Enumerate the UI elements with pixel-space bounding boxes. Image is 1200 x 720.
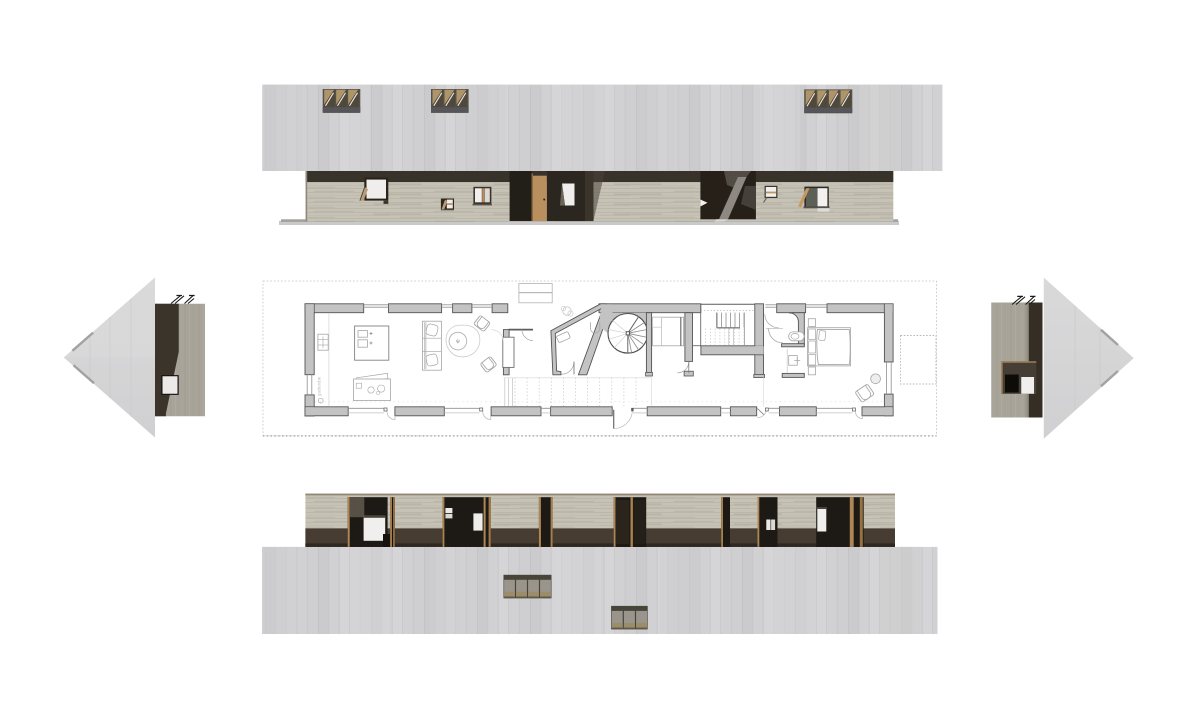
svg-text:garderobe: garderobe — [317, 376, 322, 396]
